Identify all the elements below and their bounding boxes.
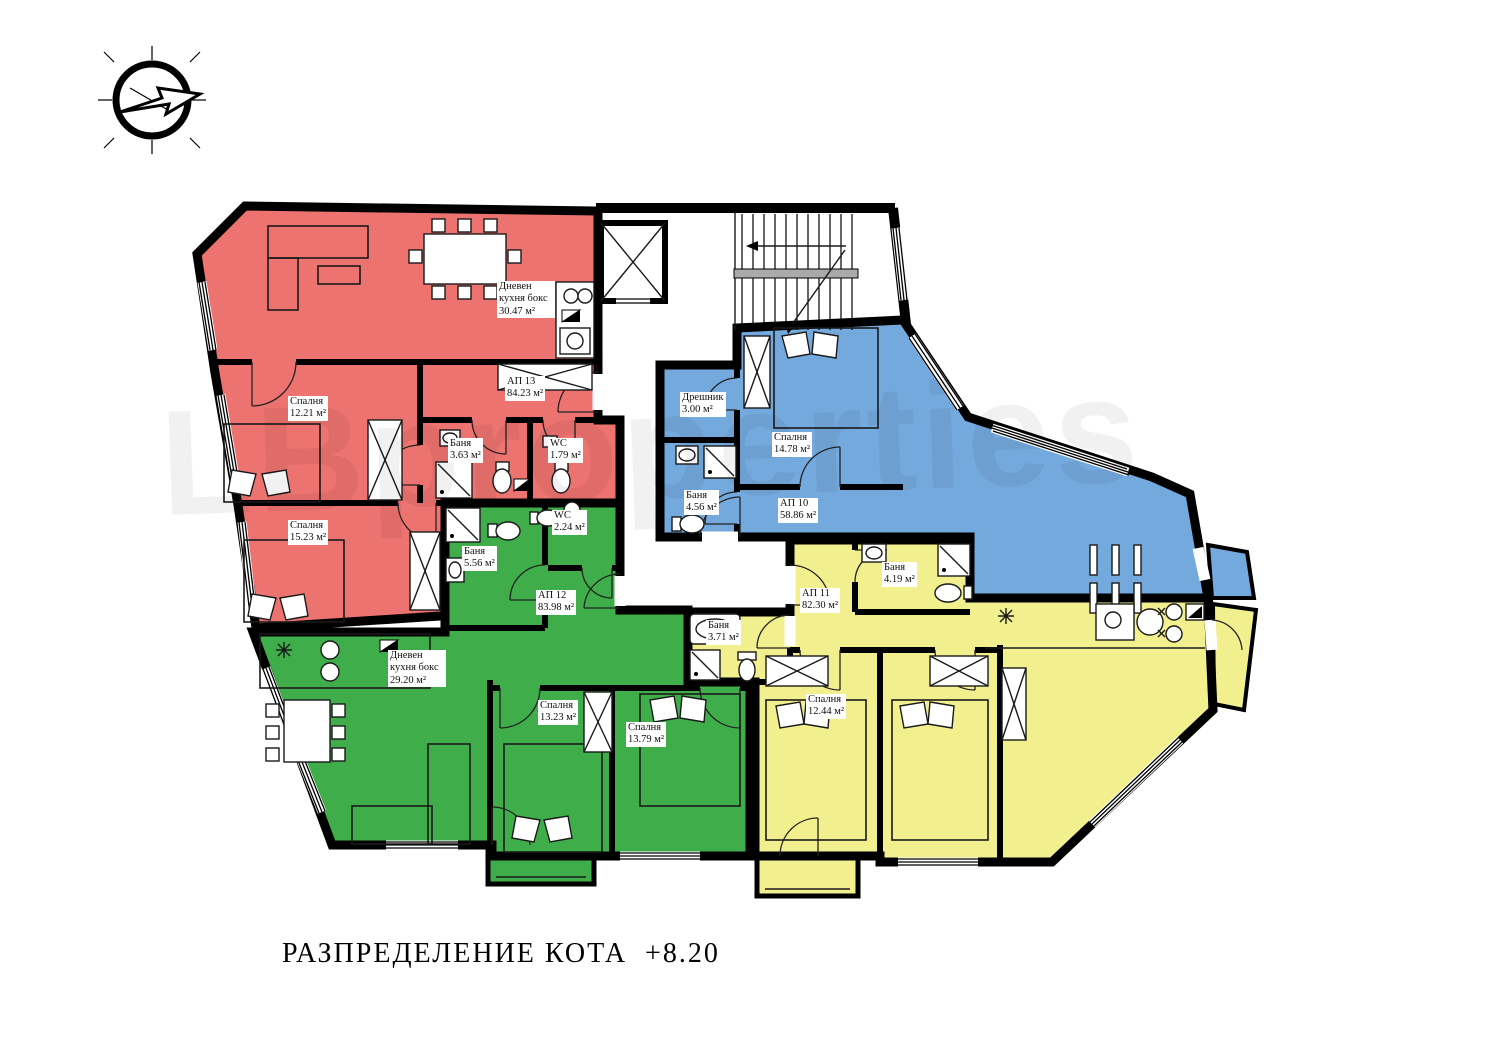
floor-plan-drawing bbox=[0, 0, 1500, 1060]
room-label-red-bedroom1: Спалня12.21 м² bbox=[288, 396, 328, 421]
room-label-green-bedroom2: Спалня13.79 м² bbox=[626, 722, 666, 747]
staircase bbox=[734, 212, 858, 334]
room-label-blue-bedroom: Спалня14.78 м² bbox=[772, 432, 812, 457]
apartment-label-ap10: АП 1058.86 м² bbox=[778, 498, 818, 523]
room-label-green-bedroom1: Спалня13.23 м² bbox=[538, 700, 578, 725]
room-label-yellow-bath1: Баня3.71 м² bbox=[706, 620, 741, 645]
room-label-red-bedroom2: Спалня15.23 м² bbox=[288, 520, 328, 545]
apartment-label-ap12: АП 1283.98 м² bbox=[536, 590, 576, 615]
room-label-green-wc: WC2.24 м² bbox=[552, 510, 587, 535]
room-label-yellow-bedroom: Спалня12.44 м² bbox=[806, 694, 846, 719]
room-label-yellow-bath2: Баня4.19 м² bbox=[882, 562, 917, 587]
room-label-green-bath: Баня5.56 м² bbox=[462, 546, 497, 571]
room-label-blue-closet: Дрешник3.00 м² bbox=[680, 392, 726, 417]
room-label-green-living: Дневен кухня бокс29.20 м² bbox=[388, 650, 446, 687]
apartment-label-ap11: АП 1182.30 м² bbox=[800, 588, 840, 613]
plan-title: РАЗПРЕДЕЛЕНИЕ КОТА +8.20 bbox=[282, 938, 720, 970]
room-label-red-living: Дневен кухня бокс30.47 м² bbox=[497, 281, 555, 318]
compass-icon bbox=[98, 46, 206, 154]
elevator bbox=[601, 223, 665, 303]
room-label-red-wc: WC1.79 м² bbox=[548, 438, 583, 463]
apartment-label-ap13: АП 1384.23 м² bbox=[505, 376, 545, 401]
room-label-blue-bath: Баня4.56 м² bbox=[684, 490, 719, 515]
room-label-red-bath: Баня3.63 м² bbox=[448, 438, 483, 463]
floor-plan-page: LBproperties РАЗПРЕДЕЛЕНИЕ КОТА +8.20 Дн… bbox=[0, 0, 1500, 1060]
